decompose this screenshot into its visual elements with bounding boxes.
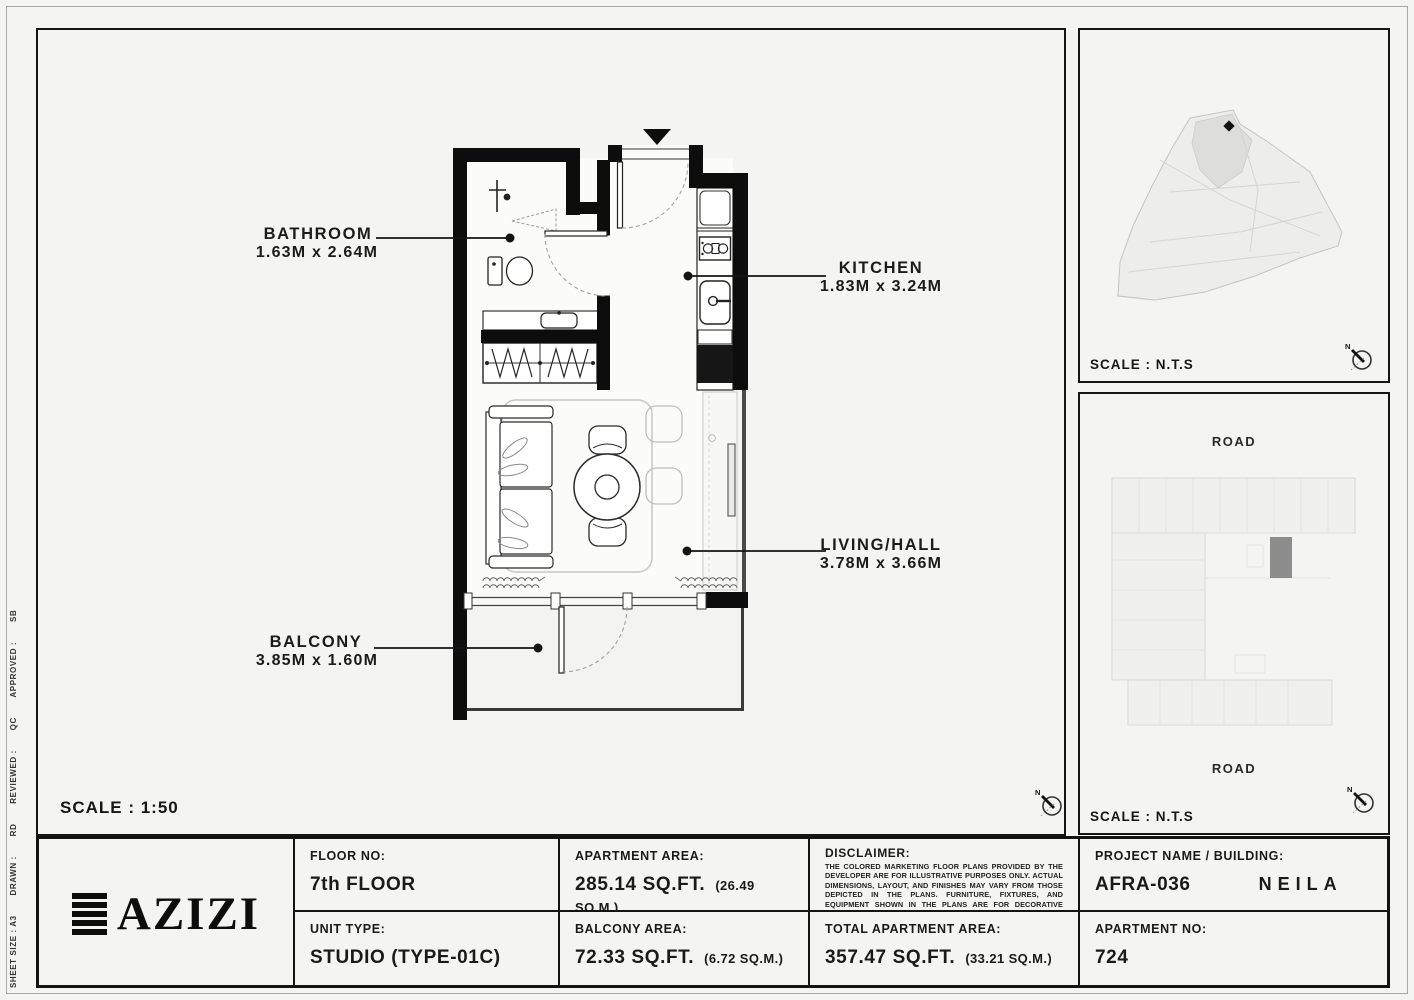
title-block-side-strip: SHEET SIZE : A3 DRAWN : RD REVIEWED : QC… [9, 593, 18, 988]
floor-plan-panel: SCALE : 1:50 [36, 28, 1066, 836]
balcony-area-cell: BALCONY AREA: 72.33 SQ.FT.(6.72 SQ.M.) [560, 912, 810, 985]
road-label-top: ROAD [1080, 434, 1388, 449]
unit-type-cell: UNIT TYPE: STUDIO (TYPE-01C) [295, 912, 560, 985]
main-scale-label: SCALE : 1:50 [60, 798, 179, 818]
apartment-area-value: 285.14 SQ.FT.(26.49 SQ.M.) [575, 874, 793, 912]
apartment-no-label: APARTMENT NO: [1095, 922, 1372, 936]
project-name-label: PROJECT NAME / BUILDING: [1095, 849, 1372, 863]
unit-type-value: STUDIO (TYPE-01C) [310, 947, 543, 969]
apartment-no-value: 724 [1095, 947, 1372, 969]
unit-type-label: UNIT TYPE: [310, 922, 543, 936]
total-area-value: 357.47 SQ.FT.(33.21 SQ.M.) [825, 947, 1063, 969]
disclaimer-label: DISCLAIMER: [825, 846, 1063, 860]
building-map-scale-label: SCALE : N.T.S [1090, 809, 1194, 824]
project-name-value: AFRA-036 NEILA [1095, 874, 1372, 896]
road-label-bottom: ROAD [1080, 761, 1388, 776]
reviewed-value: QC [9, 717, 18, 730]
disclaimer-text: THE COLORED MARKETING FLOOR PLANS PROVID… [825, 862, 1063, 912]
total-area-cell: TOTAL APARTMENT AREA: 357.47 SQ.FT.(33.2… [810, 912, 1080, 985]
building-name: NEILA [1259, 874, 1343, 895]
site-map-panel: SCALE : N.T.S [1078, 28, 1390, 383]
azizi-logo-text: AZIZI [117, 891, 260, 938]
apartment-area-cell: APARTMENT AREA: 285.14 SQ.FT.(26.49 SQ.M… [560, 839, 810, 912]
building-map-panel: ROAD ROAD SCALE : N.T.S [1078, 392, 1390, 835]
floor-no-cell: FLOOR NO: 7th FLOOR [295, 839, 560, 912]
balcony-area-label: BALCONY AREA: [575, 922, 793, 936]
total-area-metric: (33.21 SQ.M.) [965, 951, 1052, 966]
disclaimer-cell: DISCLAIMER: THE COLORED MARKETING FLOOR … [810, 839, 1080, 912]
drawn-value: RD [9, 824, 18, 837]
floor-no-value: 7th FLOOR [310, 874, 543, 896]
drawn-label: DRAWN : [9, 856, 18, 895]
reviewed-label: REVIEWED : [9, 750, 18, 804]
approved-value: SB [9, 610, 18, 622]
balcony-area-metric: (6.72 SQ.M.) [704, 951, 783, 966]
floor-no-label: FLOOR NO: [310, 849, 543, 863]
apartment-area-label: APARTMENT AREA: [575, 849, 793, 863]
title-block: AZIZI FLOOR NO: 7th FLOOR APARTMENT AREA… [36, 836, 1390, 988]
sheet-size-label: SHEET SIZE : A3 [9, 915, 18, 988]
balcony-area-value: 72.33 SQ.FT.(6.72 SQ.M.) [575, 947, 793, 969]
project-name-cell: PROJECT NAME / BUILDING: AFRA-036 NEILA [1080, 839, 1387, 912]
apartment-no-cell: APARTMENT NO: 724 [1080, 912, 1387, 985]
site-map-scale-label: SCALE : N.T.S [1090, 357, 1194, 372]
azizi-logo: AZIZI [72, 891, 260, 938]
azizi-logo-bars-icon [72, 893, 107, 935]
floorplan-sheet: SHEET SIZE : A3 DRAWN : RD REVIEWED : QC… [0, 0, 1414, 1000]
approved-label: APPROVED : [9, 642, 18, 698]
total-area-label: TOTAL APARTMENT AREA: [825, 922, 1063, 936]
developer-logo-cell: AZIZI [39, 839, 295, 985]
